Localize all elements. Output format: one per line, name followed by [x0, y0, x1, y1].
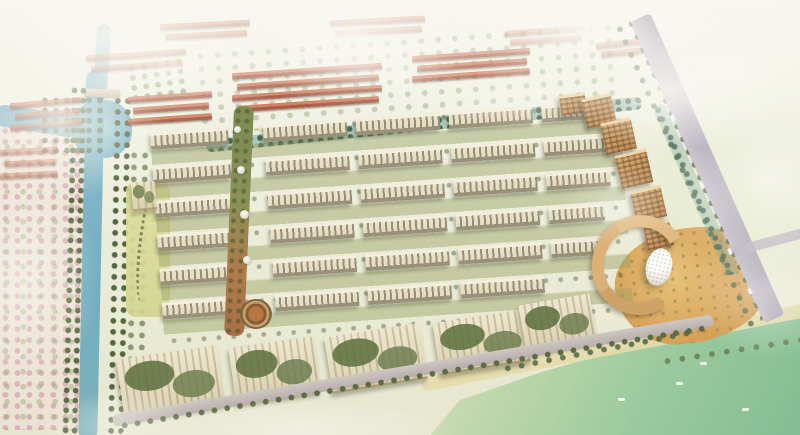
- east-branch-road: [728, 228, 800, 257]
- roads-layer: [0, 0, 800, 435]
- canal: [78, 70, 105, 435]
- blossom-field-layer: [0, 0, 800, 435]
- haze-blob: [40, 390, 200, 435]
- canal-junction: [72, 100, 132, 158]
- tree-belt: [61, 86, 86, 435]
- apartment-slab: [451, 140, 536, 163]
- tree-belt: [126, 56, 191, 104]
- haze-blob: [430, 60, 610, 130]
- axis-landmarks-layer: [0, 0, 800, 435]
- apartment-slab: [453, 174, 538, 197]
- villa-row: [128, 113, 212, 126]
- haze-blob: [690, 220, 800, 360]
- boats-layer: [0, 0, 800, 435]
- villa-row: [510, 34, 582, 46]
- park-layer: [0, 0, 800, 435]
- commercial-block: [432, 309, 531, 376]
- axis-landmark: [237, 166, 245, 174]
- tree-belt: [205, 96, 642, 152]
- axis-landmark: [240, 210, 249, 219]
- east-towers-layer: [0, 0, 800, 435]
- boat: [676, 382, 683, 385]
- villa-row: [505, 25, 585, 38]
- villa-row: [5, 159, 55, 169]
- boat: [618, 398, 625, 401]
- east-open-field: [564, 0, 800, 398]
- tree-belt: [125, 150, 152, 412]
- lake: [380, 290, 800, 435]
- tree-belt: [660, 333, 800, 368]
- villa-row: [237, 96, 379, 113]
- apartment-slab: [152, 161, 231, 183]
- villa-row: [128, 91, 212, 104]
- west-lawn: [126, 182, 170, 317]
- apartment-slab: [162, 297, 237, 319]
- tree-belt: [118, 322, 712, 434]
- canal-bridge: [84, 88, 120, 97]
- apartment-slab: [150, 128, 229, 150]
- commercial-block: [228, 336, 321, 404]
- landmark-layer: [0, 0, 800, 435]
- commercial-block: [131, 181, 157, 212]
- apartment-slab: [360, 181, 445, 204]
- apartment-slab: [270, 221, 355, 244]
- villa-row: [160, 20, 250, 32]
- haze-blob: [0, 40, 170, 200]
- haze-blob: [430, 0, 730, 90]
- villa-row: [412, 68, 530, 83]
- apartment-slab: [265, 153, 350, 176]
- vehicles-layer: [0, 0, 800, 435]
- tower-building: [643, 219, 675, 250]
- apartment-slab: [363, 215, 448, 238]
- haze-blob: [140, 400, 460, 435]
- tower-building: [581, 93, 617, 129]
- haze-blob: [0, 170, 100, 390]
- east-arterial-road: [630, 13, 784, 323]
- vehicle: [727, 248, 732, 255]
- villa-row: [0, 170, 58, 180]
- villa-row: [10, 119, 82, 132]
- commercial-blocks-layer: [0, 0, 800, 435]
- canal-north-arm: [93, 24, 112, 97]
- west-curved-path: [132, 191, 163, 304]
- villa-row: [412, 48, 530, 63]
- axis-landmark: [243, 256, 251, 264]
- tree-belt: [193, 21, 628, 135]
- boat: [700, 362, 707, 365]
- haze-blob: [40, 20, 300, 120]
- atmospheric-haze-layer: [0, 0, 800, 435]
- apartment-slab: [275, 289, 360, 312]
- tower-building: [600, 117, 637, 155]
- apartment-slab: [358, 147, 443, 170]
- commercial-block: [116, 345, 225, 420]
- apartment-slab: [267, 187, 352, 210]
- tower-building: [630, 185, 667, 223]
- haze-blob: [180, 0, 520, 90]
- apartment-slab: [155, 195, 234, 217]
- villa-row: [15, 108, 79, 121]
- villa-row: [10, 97, 82, 110]
- apartment-slab: [365, 248, 450, 271]
- villa-row: [165, 30, 247, 41]
- tree-belt: [106, 96, 131, 434]
- apartment-slab: [541, 101, 612, 123]
- apartment-slab: [355, 113, 440, 136]
- villa-row: [417, 58, 527, 73]
- villa-row: [91, 60, 183, 73]
- aerial-masterplan-rendering: [0, 0, 800, 435]
- villa-row: [237, 74, 379, 91]
- canal-bank-trees-layer: [0, 0, 800, 435]
- tower-building: [615, 149, 654, 189]
- haze-blob: [240, 30, 480, 110]
- villa-row: [335, 26, 422, 38]
- apartment-slab: [546, 169, 611, 190]
- tree-belt: [612, 18, 764, 329]
- tree-belt: [40, 96, 104, 154]
- vehicle: [654, 80, 659, 87]
- villa-row: [133, 102, 209, 114]
- villa-row: [232, 85, 382, 102]
- tree-belt: [501, 326, 700, 377]
- fields-layer: [0, 0, 800, 435]
- roadside-trees-layer: [0, 0, 800, 435]
- commercial-block: [324, 323, 428, 394]
- dome-pavilion: [642, 245, 676, 288]
- apartment-slab: [455, 208, 540, 231]
- vehicle: [670, 114, 675, 121]
- tree-belt: [0, 140, 92, 430]
- haze-blob: [660, 90, 800, 270]
- vehicle: [747, 288, 752, 295]
- apartment-slab: [551, 238, 600, 258]
- apartment-slab: [263, 119, 348, 142]
- tree-belt: [0, 126, 98, 430]
- water-layer: [0, 0, 800, 435]
- apartment-slab: [448, 106, 533, 129]
- apartment-slab: [272, 255, 357, 278]
- villa-row: [601, 46, 653, 58]
- villa-row: [330, 16, 425, 28]
- axis-landmark: [234, 126, 241, 133]
- south-lakeside-road: [112, 315, 714, 427]
- haze-blob: [560, 160, 680, 250]
- villa-row: [0, 146, 58, 156]
- apartment-slab: [458, 242, 543, 265]
- villa-row: [596, 37, 656, 50]
- apartment-slab: [548, 204, 605, 225]
- apartment-slab: [157, 229, 236, 251]
- apartment-grid: [150, 100, 634, 344]
- apartment-slab: [460, 276, 545, 299]
- boat: [742, 408, 749, 411]
- arc-building: [583, 206, 698, 324]
- central-green-axis: [224, 106, 254, 337]
- villa-clusters-layer: [0, 0, 800, 435]
- tower-building: [559, 92, 588, 115]
- circular-plaza: [240, 299, 272, 329]
- haze-blob: [0, 0, 280, 100]
- residential-layer: [0, 0, 800, 435]
- apartment-slab: [367, 282, 452, 305]
- vehicle: [699, 182, 704, 189]
- commercial-block: [518, 293, 597, 354]
- haze-blob: [560, 30, 780, 150]
- apartment-slab: [159, 263, 238, 285]
- villa-row: [86, 49, 186, 63]
- tree-belt: [652, 103, 739, 277]
- haze-blob: [600, 0, 800, 150]
- apartment-slab: [543, 135, 614, 157]
- villa-row: [232, 63, 382, 80]
- sand-plaza: [609, 220, 770, 350]
- canal-west-arm: [0, 103, 81, 138]
- lake-shore-sand: [420, 302, 800, 392]
